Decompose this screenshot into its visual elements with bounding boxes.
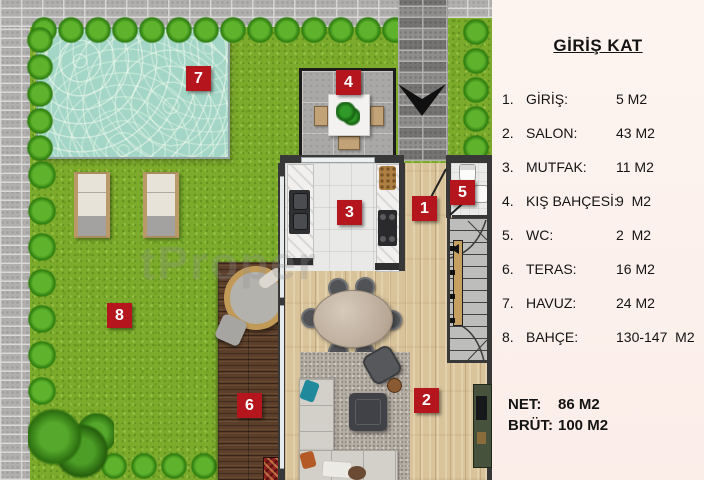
legend-row-label: TERAS: (526, 260, 616, 279)
winter-garden-chair (338, 136, 360, 150)
legend-row: 3. MUTFAK: 11 M2 (502, 158, 702, 177)
brut-label: BRÜT: (508, 415, 558, 436)
table-plant (336, 102, 360, 126)
brut-area-row: BRÜT: 100 M2 (508, 415, 608, 436)
bush-column-left (28, 158, 56, 414)
net-label: NET: (508, 394, 558, 415)
wall-stairs-left (447, 218, 450, 363)
wc-sink (474, 185, 488, 203)
bush-column-pool-left (26, 26, 56, 162)
brick-paving-top-right (446, 0, 492, 18)
legend-row-value: 24 M2 (616, 294, 702, 313)
legend-row-label: MUTFAK: (526, 158, 616, 177)
legend-row-value: 130-147 M2 (616, 328, 702, 347)
stair-direction-arrow-icon (451, 244, 459, 254)
legend-row-number: 1. (502, 90, 526, 109)
banister-post (450, 318, 455, 323)
legend-row: 8. BAHÇE: 130-147 M2 (502, 328, 702, 347)
tv (476, 396, 487, 420)
room-badge-garden: 8 (107, 303, 132, 328)
legend-row-number: 8. (502, 328, 526, 347)
lounger-seat-shadow (78, 216, 106, 236)
swimming-pool (36, 27, 230, 159)
lounger-seat-shadow (147, 216, 175, 236)
banister-post (450, 270, 455, 275)
sun-lounger-right (143, 172, 179, 238)
legend-row-number: 3. (502, 158, 526, 177)
legend-row-number: 4. (502, 192, 526, 211)
garden-tree (28, 408, 114, 480)
legend-row-value: 5 M2 (616, 90, 702, 109)
legend-row-label: GİRİŞ: (526, 90, 616, 109)
bush-row-bottom (100, 452, 220, 480)
legend-row-label: BAHÇE: (526, 328, 616, 347)
lounger-pillow-line (147, 192, 175, 193)
floor-plan: tProper 1 2 3 4 5 6 7 8 (0, 0, 492, 480)
legend-row-number: 2. (502, 124, 526, 143)
brut-value: 100 M2 (558, 415, 608, 436)
room-badge-wc: 5 (450, 180, 475, 205)
net-value: 86 M2 (558, 394, 600, 415)
legend-panel: GİRİŞ KAT 1. GİRİŞ: 5 M2 2. SALON: 43 M2… (492, 0, 704, 480)
legend-row: 5. WC: 2 M2 (502, 226, 702, 245)
legend-row-label: SALON: (526, 124, 616, 143)
burner (389, 236, 395, 242)
stove (378, 210, 397, 246)
burner (380, 236, 386, 242)
legend-title: GİRİŞ KAT (492, 36, 704, 56)
legend-totals: NET: 86 M2 BRÜT: 100 M2 (508, 394, 608, 436)
cutting-board (379, 166, 396, 190)
legend-row-number: 7. (502, 294, 526, 313)
dining-table (313, 290, 393, 348)
legend-row-value: 2 M2 (616, 226, 702, 245)
legend-row: 1. GİRİŞ: 5 M2 (502, 90, 702, 109)
entrance-arrow-icon (397, 82, 447, 118)
tv-unit-decor (477, 432, 486, 444)
winter-garden-chair (370, 106, 384, 126)
wall-top-right (446, 155, 492, 163)
toilet-tank (460, 165, 475, 170)
legend-row-value: 9 M2 (616, 192, 702, 211)
legend-row-label: KIŞ BAHÇESİ: (526, 192, 616, 211)
room-badge-kitchen: 3 (337, 200, 362, 225)
wall-wc-bottom (452, 215, 492, 218)
entrance-brick-path (398, 0, 448, 161)
room-badge-pool: 7 (186, 66, 211, 91)
side-table (387, 378, 402, 393)
kitchen-sink (289, 190, 310, 234)
room-badge-terrace: 6 (237, 393, 262, 418)
sink-basin (293, 213, 308, 230)
bush-row-top (30, 16, 398, 46)
wall-kitchen-hall (399, 163, 405, 271)
burner (389, 214, 395, 220)
coffee-table (349, 393, 387, 431)
floor-plan-page: tProper 1 2 3 4 5 6 7 8 GİRİŞ KAT 1. GİR… (0, 0, 704, 480)
legend-row: 7. HAVUZ: 24 M2 (502, 294, 702, 313)
banister-post (450, 294, 455, 299)
burner (380, 214, 386, 220)
legend-row-number: 6. (502, 260, 526, 279)
legend-row: 6. TERAS: 16 M2 (502, 260, 702, 279)
net-area-row: NET: 86 M2 (508, 394, 608, 415)
legend-row: 4. KIŞ BAHÇESİ: 9 M2 (502, 192, 702, 211)
counter-end-cap (287, 258, 313, 265)
sun-lounger-left (74, 172, 110, 238)
floor-pouf (348, 466, 366, 480)
legend-row-label: WC: (526, 226, 616, 245)
legend-row-value: 43 M2 (616, 124, 702, 143)
window-left-lower (280, 305, 284, 469)
legend-row-value: 16 M2 (616, 260, 702, 279)
legend-list: 1. GİRİŞ: 5 M2 2. SALON: 43 M2 3. MUTFAK… (502, 90, 702, 362)
legend-row-label: HAVUZ: (526, 294, 616, 313)
legend-row: 2. SALON: 43 M2 (502, 124, 702, 143)
room-badge-salon: 2 (414, 388, 439, 413)
window-left-upper (280, 176, 284, 298)
wall-stairs-bottom (450, 360, 492, 363)
room-badge-entrance: 1 (412, 196, 437, 221)
counter-end-cap (375, 263, 400, 270)
legend-row-number: 5. (502, 226, 526, 245)
legend-row-value: 11 M2 (616, 158, 702, 177)
window-top (301, 157, 375, 163)
lounger-pillow-line (78, 192, 106, 193)
sink-basin (293, 193, 308, 210)
bush-column-right (462, 18, 492, 162)
room-badge-winter-garden: 4 (336, 70, 361, 95)
winter-garden-chair (314, 106, 328, 126)
